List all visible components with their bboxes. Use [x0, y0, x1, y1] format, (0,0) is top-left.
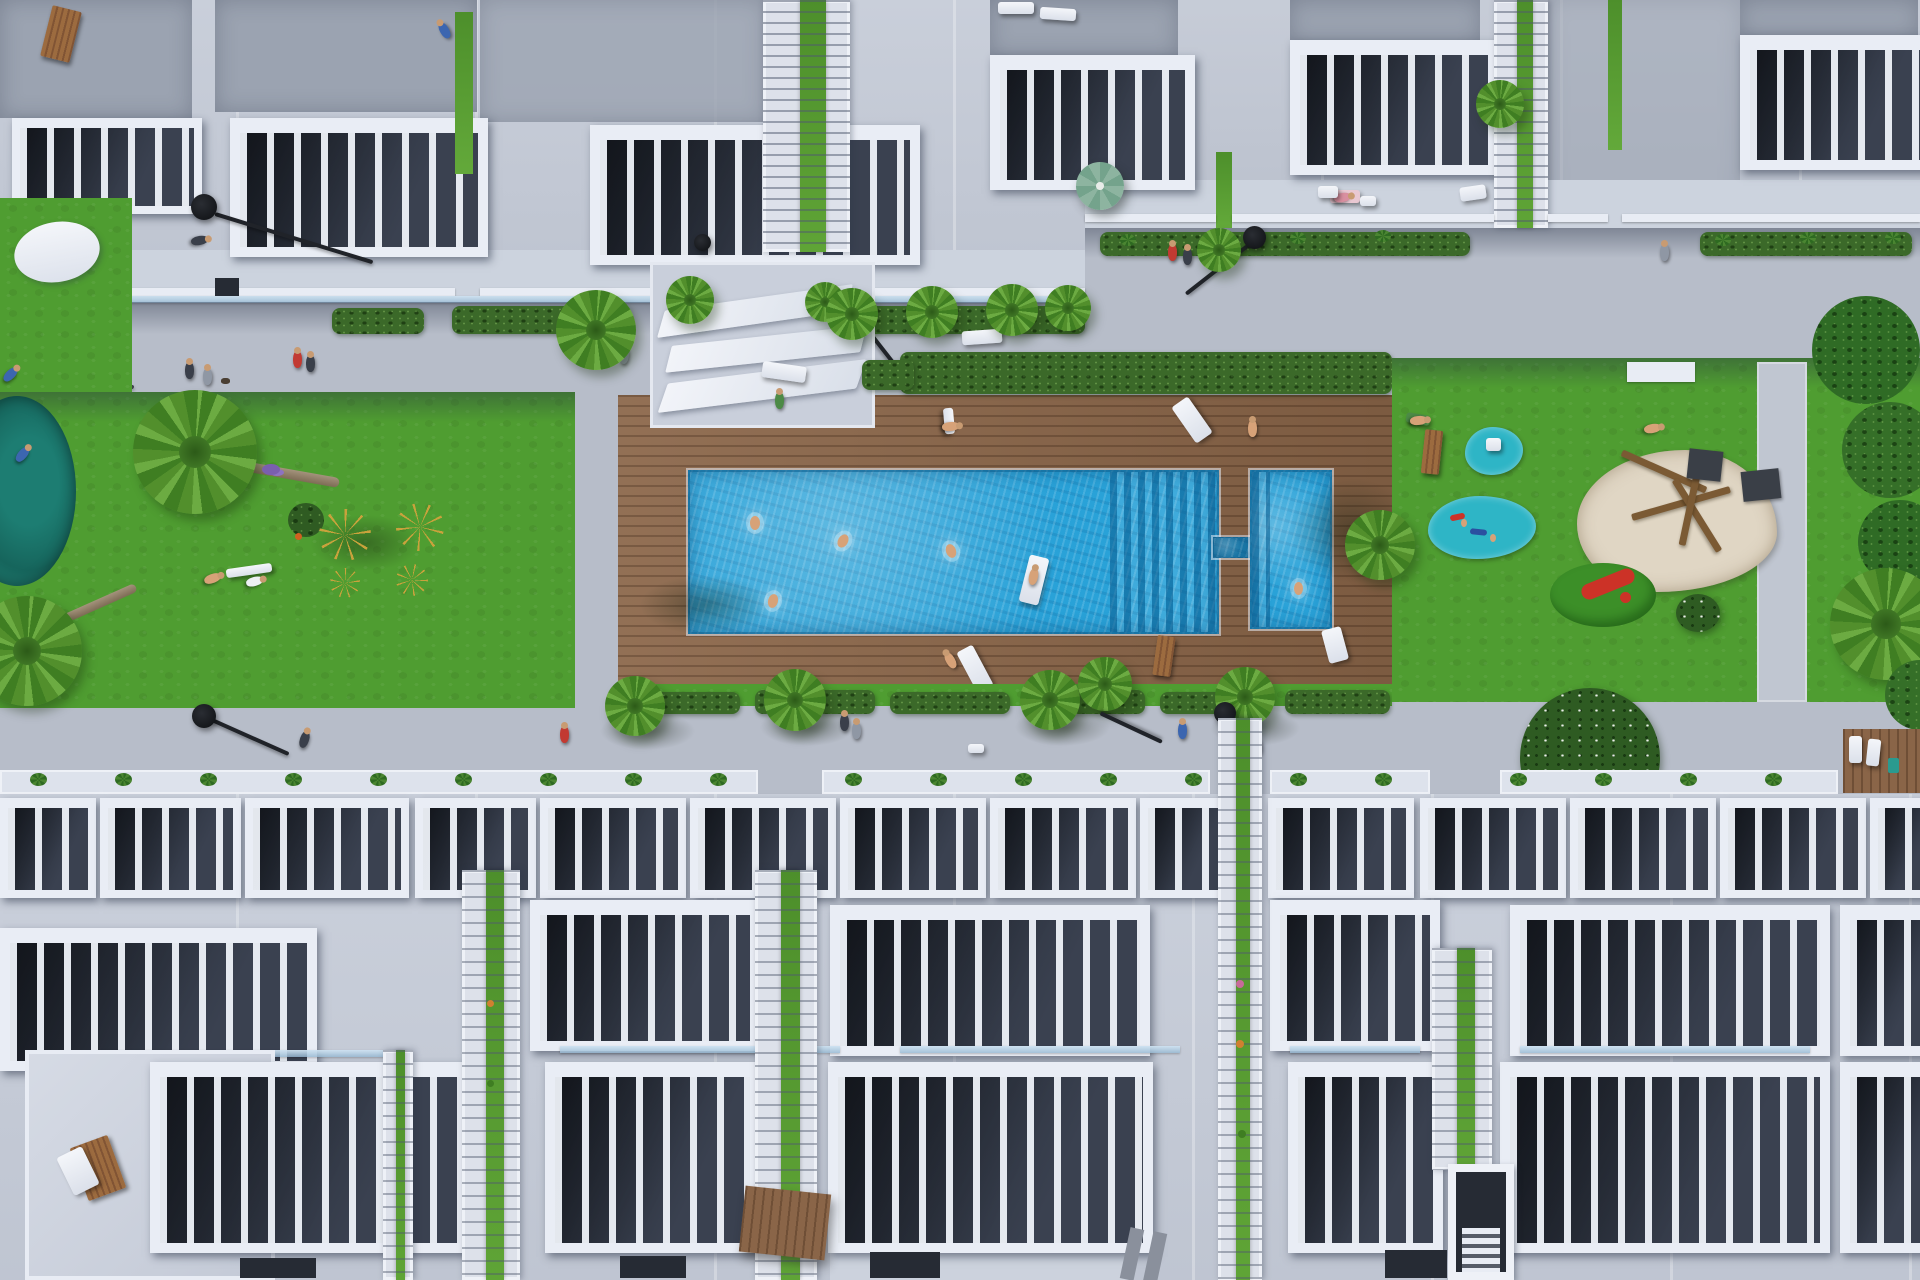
terrace-furniture	[1318, 186, 1338, 198]
pergola-terrace	[245, 798, 409, 898]
stair-core	[1432, 948, 1492, 1170]
palm-tree	[556, 290, 636, 370]
child	[1461, 519, 1467, 527]
stair-flowers	[1236, 980, 1244, 988]
pergola-terrace	[1420, 798, 1566, 898]
pergola-terrace	[0, 798, 96, 898]
pergola-terrace	[830, 905, 1150, 1056]
sun-lounger	[1849, 736, 1862, 763]
person	[298, 730, 312, 749]
agave-plant	[1680, 773, 1697, 786]
agave-plant	[625, 773, 642, 786]
pergola-terrace	[150, 1062, 470, 1253]
street-bench	[968, 744, 984, 753]
skylight-slot	[870, 1252, 940, 1278]
garden-bench	[1627, 362, 1695, 382]
skylight-slot	[620, 1256, 686, 1278]
glass-balustrade	[900, 1046, 1180, 1053]
pergola-terrace	[1270, 900, 1440, 1051]
pergola-terrace	[1870, 798, 1920, 898]
kids-pool-steps	[1252, 472, 1270, 627]
pergola-terrace	[1720, 798, 1866, 898]
stair-core	[462, 870, 520, 1280]
palm-tree	[605, 676, 665, 736]
palm-tree	[906, 286, 958, 338]
aerial-render	[0, 0, 1920, 1280]
street-lamp	[1243, 226, 1266, 249]
person	[840, 714, 849, 731]
green-parasol	[1076, 162, 1124, 210]
pergola-terrace	[1140, 798, 1226, 898]
child	[1490, 534, 1496, 542]
street-lamp	[192, 704, 216, 728]
swimmer	[1294, 582, 1303, 595]
palm-tree	[826, 288, 878, 340]
palm-tree	[1345, 510, 1415, 580]
agave-plant	[1290, 773, 1307, 786]
agave-plant	[710, 773, 727, 786]
person	[1183, 248, 1192, 265]
parapet	[1622, 214, 1920, 222]
parapet	[1548, 214, 1608, 222]
agave-plant	[1595, 773, 1612, 786]
glass-balustrade	[1520, 1046, 1810, 1053]
pool-channel	[1213, 537, 1253, 558]
agave-plant	[1885, 232, 1901, 244]
person	[1660, 244, 1669, 261]
person	[306, 355, 315, 372]
deck-hedge-north	[900, 352, 1392, 394]
pallet-bench	[739, 1186, 831, 1261]
toy-box	[1486, 438, 1501, 451]
pergola-terrace	[828, 1062, 1153, 1253]
pergola-terrace	[1288, 1062, 1443, 1253]
agave-plant	[1800, 232, 1816, 244]
agave-plant	[200, 773, 217, 786]
person	[1168, 244, 1177, 261]
planter-strip	[1500, 770, 1838, 794]
agave-plant	[1120, 234, 1136, 246]
agave-plant	[115, 773, 132, 786]
roof-patch	[0, 0, 192, 118]
palm-tree	[1078, 657, 1132, 711]
person	[293, 351, 302, 368]
person	[203, 368, 212, 385]
agave-plant	[845, 773, 862, 786]
teal-towel	[1888, 758, 1899, 773]
palm-tree	[1045, 285, 1091, 331]
climbing-panel	[1687, 448, 1724, 481]
shaft-steps	[1462, 1228, 1500, 1272]
deck-hedge-south	[890, 692, 1010, 714]
palm-tree	[666, 276, 714, 324]
pergola-terrace	[1510, 905, 1830, 1056]
skylight-slot	[1385, 1250, 1447, 1278]
pergola-terrace	[1740, 35, 1920, 170]
play-mound	[1550, 563, 1656, 627]
parapet	[1232, 214, 1494, 222]
agave-plant	[1715, 234, 1731, 246]
person	[775, 392, 784, 409]
deck-hedge-north	[862, 360, 914, 390]
gym-station	[319, 509, 371, 561]
agave-plant	[1100, 773, 1117, 786]
tree-shadow-band	[0, 392, 575, 422]
pergola-terrace	[1570, 798, 1716, 898]
pergola-terrace	[840, 798, 986, 898]
tree-canopy	[1812, 296, 1920, 404]
pool-entry-steps	[1110, 472, 1215, 632]
pergola-terrace	[1290, 40, 1498, 175]
roof-vent	[694, 234, 711, 251]
climbing-panel	[1741, 468, 1782, 502]
stair-core	[1218, 718, 1262, 1280]
person	[560, 726, 569, 743]
person	[852, 722, 861, 739]
stair-flowers	[487, 1000, 494, 1007]
agave-plant	[930, 773, 947, 786]
roof-stair-shaft	[1448, 1164, 1514, 1280]
pergola-terrace	[530, 900, 760, 1051]
agave-plant	[1375, 230, 1391, 242]
palm-tree	[986, 284, 1038, 336]
agave-plant	[455, 773, 472, 786]
palm-tree	[1476, 80, 1524, 128]
skylight-slot	[240, 1258, 316, 1278]
roof-patch	[480, 0, 765, 122]
person	[1248, 420, 1257, 437]
dog	[221, 378, 230, 384]
pergola-terrace	[1500, 1062, 1830, 1253]
green-roof-strip	[455, 12, 473, 174]
purple-flowers	[262, 464, 280, 475]
agave-plant	[1185, 773, 1202, 786]
stair-tower	[763, 0, 850, 252]
palm-tree	[764, 669, 826, 731]
stair-opening	[215, 278, 239, 296]
agave-plant	[285, 773, 302, 786]
pergola-terrace	[100, 798, 241, 898]
glass-balustrade	[1290, 1046, 1420, 1053]
pergola-terrace	[990, 798, 1136, 898]
agave-plant	[1015, 773, 1032, 786]
agave-plant	[1510, 773, 1527, 786]
deck-hedge-south	[1285, 690, 1390, 714]
lamp-pole	[211, 718, 289, 756]
green-roof-strip	[1216, 152, 1232, 228]
agave-plant	[540, 773, 557, 786]
agave-plant	[30, 773, 47, 786]
orange-flower	[295, 533, 302, 540]
green-roof-strip	[1608, 0, 1622, 150]
stair-core	[383, 1050, 413, 1280]
palm-tree	[1020, 670, 1080, 730]
planter-hedge	[1100, 232, 1470, 256]
palm-tree	[133, 390, 257, 514]
pergola-terrace	[1840, 1062, 1920, 1253]
street-lamp	[191, 194, 217, 220]
pergola-terrace	[230, 118, 488, 257]
pergola-terrace	[1840, 905, 1920, 1056]
swimmer	[750, 516, 760, 530]
agave-plant	[1765, 773, 1782, 786]
agave-plant	[370, 773, 387, 786]
sun-lounger	[1040, 7, 1077, 21]
agave-plant	[1290, 232, 1306, 244]
roof-patch	[1290, 0, 1480, 42]
planter-hedge	[332, 308, 424, 334]
flowering-bush	[1676, 594, 1720, 632]
terrace-furniture	[1360, 196, 1376, 206]
sun-lounger	[998, 2, 1034, 14]
parapet	[1085, 214, 1216, 222]
person	[1178, 722, 1187, 739]
roof-patch	[215, 0, 477, 112]
pergola-terrace	[590, 125, 920, 265]
palm-shadow	[640, 575, 770, 635]
pergola-terrace	[545, 1062, 760, 1253]
palm-tree	[1197, 228, 1241, 272]
slide-red-end	[1620, 592, 1631, 603]
agave-plant	[1375, 773, 1392, 786]
person	[185, 362, 194, 379]
garden-lawn-west	[0, 392, 575, 708]
pergola-terrace	[540, 798, 686, 898]
roof-patch	[1740, 0, 1918, 36]
pergola-terrace	[1268, 798, 1414, 898]
